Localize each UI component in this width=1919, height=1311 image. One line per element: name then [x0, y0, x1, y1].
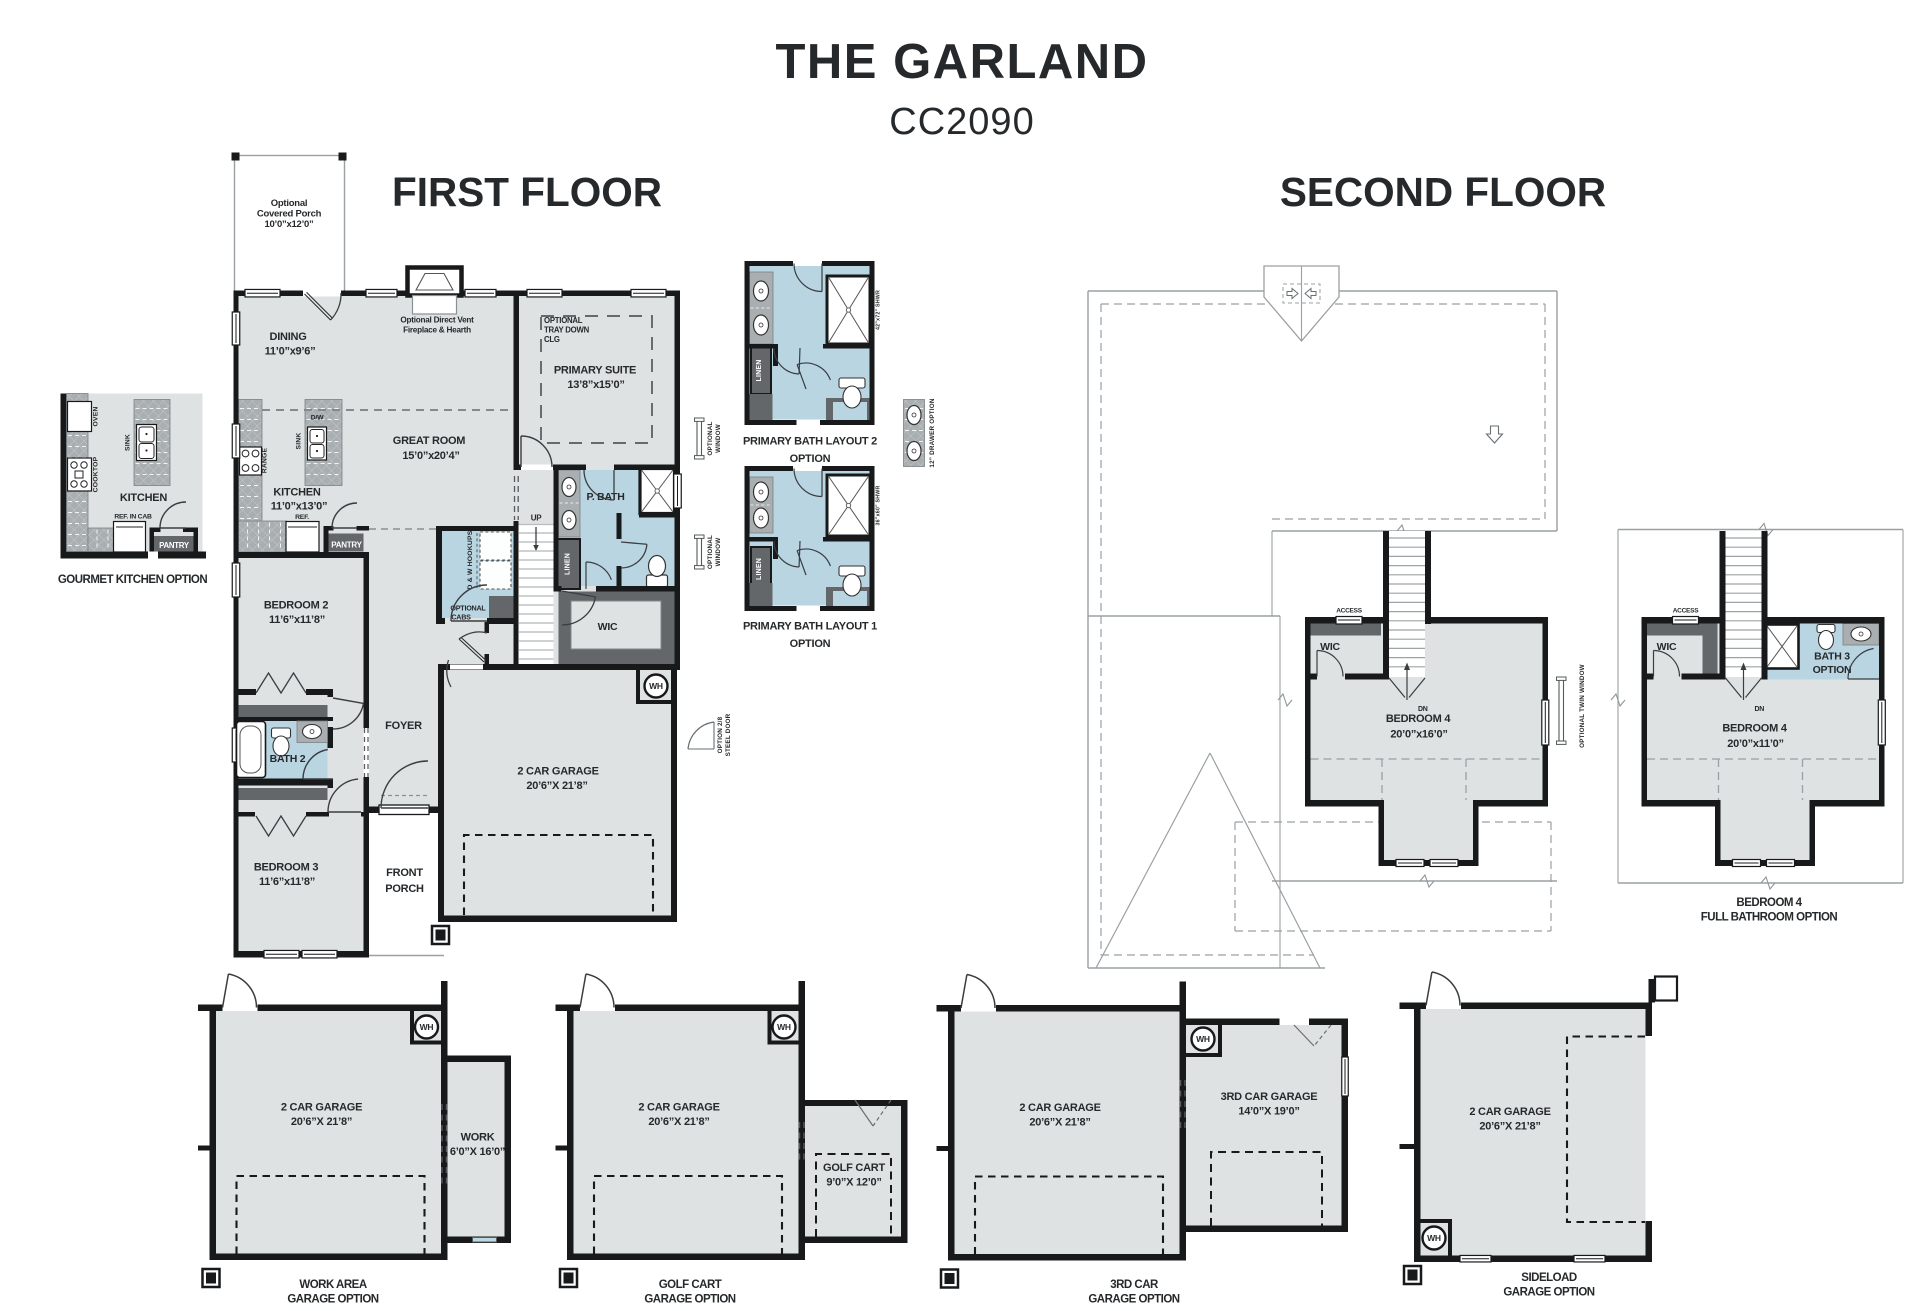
- svg-text:SINK: SINK: [296, 432, 303, 449]
- svg-text:KITCHEN: KITCHEN: [273, 487, 320, 499]
- svg-text:P. BATH: P. BATH: [586, 491, 624, 503]
- svg-text:2 CAR GARAGE: 2 CAR GARAGE: [281, 1102, 362, 1114]
- svg-text:20’6”X 21’8”: 20’6”X 21’8”: [291, 1116, 352, 1128]
- svg-text:PANTRY: PANTRY: [159, 541, 190, 550]
- svg-text:GOLF CART: GOLF CART: [823, 1162, 885, 1174]
- svg-text:WORK: WORK: [461, 1132, 495, 1144]
- svg-text:DN: DN: [1755, 706, 1765, 713]
- svg-text:CLG: CLG: [544, 335, 560, 344]
- svg-text:OPTION 2/8: OPTION 2/8: [717, 716, 724, 753]
- svg-text:BATH 3: BATH 3: [1814, 651, 1850, 663]
- svg-text:9’0”X 12’0”: 9’0”X 12’0”: [826, 1177, 881, 1189]
- svg-text:ACCESS: ACCESS: [1336, 608, 1363, 615]
- svg-text:BEDROOM 4: BEDROOM 4: [1386, 713, 1452, 725]
- svg-text:13’8”x15’0”: 13’8”x15’0”: [567, 379, 624, 391]
- svg-text:GARAGE OPTION: GARAGE OPTION: [287, 1294, 378, 1306]
- svg-text:Optional Direct Vent: Optional Direct Vent: [400, 316, 474, 325]
- svg-text:LINEN: LINEN: [756, 558, 763, 580]
- svg-text:BEDROOM 2: BEDROOM 2: [264, 600, 329, 612]
- svg-text:OPTION: OPTION: [790, 453, 831, 465]
- svg-text:WH: WH: [777, 1022, 791, 1032]
- svg-text:GARAGE OPTION: GARAGE OPTION: [1088, 1294, 1179, 1306]
- svg-text:2 CAR GARAGE: 2 CAR GARAGE: [638, 1102, 719, 1114]
- svg-text:11’6”x11’8”: 11’6”x11’8”: [269, 614, 325, 626]
- svg-text:DN: DN: [1418, 706, 1428, 713]
- svg-text:REF.: REF.: [295, 514, 309, 521]
- svg-text:10’0”x12’0”: 10’0”x12’0”: [264, 219, 314, 230]
- svg-text:OPTION: OPTION: [790, 638, 831, 650]
- svg-text:DINING: DINING: [270, 331, 307, 343]
- svg-text:REF. IN CAB: REF. IN CAB: [114, 514, 152, 521]
- svg-text:ACCESS: ACCESS: [1673, 608, 1700, 615]
- svg-text:GARAGE OPTION: GARAGE OPTION: [644, 1294, 735, 1306]
- svg-text:20’0”x11’0”: 20’0”x11’0”: [1727, 738, 1784, 750]
- svg-text:SECOND FLOOR: SECOND FLOOR: [1280, 169, 1606, 215]
- svg-text:PANTRY: PANTRY: [331, 541, 362, 550]
- svg-text:2 CAR GARAGE: 2 CAR GARAGE: [1469, 1106, 1550, 1118]
- svg-text:2 CAR GARAGE: 2 CAR GARAGE: [517, 766, 598, 778]
- svg-text:12” DRAWER OPTION: 12” DRAWER OPTION: [929, 398, 936, 467]
- svg-text:KITCHEN: KITCHEN: [120, 492, 167, 504]
- svg-text:36”x60” SHWR: 36”x60” SHWR: [876, 485, 882, 525]
- svg-text:11’0”x13’0”: 11’0”x13’0”: [271, 501, 328, 513]
- svg-text:SIDELOAD: SIDELOAD: [1521, 1272, 1577, 1284]
- svg-text:BEDROOM 3: BEDROOM 3: [254, 862, 319, 874]
- svg-text:OPTION: OPTION: [1813, 664, 1852, 676]
- svg-text:2 CAR GARAGE: 2 CAR GARAGE: [1019, 1102, 1100, 1114]
- svg-text:WH: WH: [649, 681, 663, 691]
- svg-text:D/W: D/W: [311, 415, 324, 422]
- svg-text:WH: WH: [1427, 1233, 1441, 1243]
- svg-text:CABS: CABS: [451, 613, 471, 622]
- svg-text:OPTIONAL: OPTIONAL: [450, 604, 486, 613]
- svg-text:PORCH: PORCH: [385, 883, 424, 895]
- svg-text:FOYER: FOYER: [385, 720, 422, 732]
- svg-text:RANGE: RANGE: [262, 447, 269, 473]
- svg-text:OPTIONAL TWIN WINDOW: OPTIONAL TWIN WINDOW: [1579, 664, 1586, 748]
- svg-text:OPTIONAL: OPTIONAL: [544, 316, 583, 325]
- svg-text:BEDROOM 4: BEDROOM 4: [1736, 897, 1802, 909]
- svg-text:20’6”X 21’8”: 20’6”X 21’8”: [1029, 1117, 1090, 1129]
- svg-text:PRIMARY BATH LAYOUT 2: PRIMARY BATH LAYOUT 2: [743, 436, 877, 448]
- svg-text:BATH 2: BATH 2: [270, 753, 306, 765]
- svg-text:FRONT: FRONT: [386, 867, 423, 879]
- svg-text:15’0”x20’4”: 15’0”x20’4”: [402, 450, 459, 462]
- svg-text:LINEN: LINEN: [565, 553, 572, 575]
- svg-text:THE GARLAND: THE GARLAND: [775, 35, 1148, 89]
- svg-text:Optional: Optional: [271, 198, 308, 209]
- svg-text:FIRST FLOOR: FIRST FLOOR: [392, 169, 662, 215]
- svg-text:6’0”X 16’0”: 6’0”X 16’0”: [450, 1146, 505, 1158]
- svg-text:GARAGE OPTION: GARAGE OPTION: [1503, 1287, 1594, 1299]
- svg-text:WINDOW: WINDOW: [715, 424, 722, 453]
- svg-text:11’6”x11’8”: 11’6”x11’8”: [259, 876, 315, 888]
- svg-text:WH: WH: [420, 1022, 434, 1032]
- svg-text:3RD CAR GARAGE: 3RD CAR GARAGE: [1221, 1091, 1318, 1103]
- svg-text:STEEL DOOR: STEEL DOOR: [725, 713, 732, 756]
- svg-text:TRAY DOWN: TRAY DOWN: [544, 326, 590, 335]
- svg-text:WIC: WIC: [598, 621, 618, 633]
- svg-text:OVEN: OVEN: [93, 406, 100, 426]
- svg-text:42”x72” SHWR: 42”x72” SHWR: [876, 290, 882, 330]
- svg-text:20’6”X 21’8”: 20’6”X 21’8”: [648, 1116, 709, 1128]
- svg-text:CC2090: CC2090: [889, 101, 1034, 143]
- svg-text:UP: UP: [531, 514, 543, 523]
- svg-text:20’6”X 21’8”: 20’6”X 21’8”: [526, 780, 587, 792]
- svg-text:COOKTOP: COOKTOP: [93, 456, 100, 492]
- svg-text:14’0”X 19’0”: 14’0”X 19’0”: [1238, 1106, 1299, 1118]
- svg-text:WINDOW: WINDOW: [715, 538, 722, 567]
- svg-text:WORK AREA: WORK AREA: [299, 1279, 366, 1291]
- svg-text:WH: WH: [1196, 1034, 1210, 1044]
- svg-text:LINEN: LINEN: [756, 360, 763, 382]
- svg-text:BEDROOM 4: BEDROOM 4: [1722, 723, 1788, 735]
- svg-text:PRIMARY SUITE: PRIMARY SUITE: [554, 365, 636, 377]
- svg-text:PRIMARY BATH LAYOUT 1: PRIMARY BATH LAYOUT 1: [743, 621, 877, 633]
- svg-text:20’0”x16’0”: 20’0”x16’0”: [1390, 729, 1447, 741]
- svg-text:D & W HOOKUPS: D & W HOOKUPS: [467, 530, 474, 589]
- svg-text:11’0”x9’6”: 11’0”x9’6”: [265, 346, 316, 358]
- svg-text:20’6”X 21’8”: 20’6”X 21’8”: [1479, 1121, 1540, 1133]
- svg-text:Fireplace & Hearth: Fireplace & Hearth: [403, 326, 471, 335]
- svg-text:SINK: SINK: [125, 434, 132, 451]
- svg-text:GOURMET KITCHEN OPTION: GOURMET KITCHEN OPTION: [58, 574, 208, 586]
- svg-text:OPTIONAL: OPTIONAL: [707, 421, 714, 455]
- svg-text:Covered Porch: Covered Porch: [257, 209, 322, 220]
- svg-text:GOLF CART: GOLF CART: [659, 1279, 722, 1291]
- svg-text:GREAT ROOM: GREAT ROOM: [393, 435, 466, 447]
- svg-text:OPTIONAL: OPTIONAL: [707, 535, 714, 569]
- svg-text:3RD CAR: 3RD CAR: [1110, 1279, 1159, 1291]
- svg-text:FULL BATHROOM OPTION: FULL BATHROOM OPTION: [1701, 912, 1838, 924]
